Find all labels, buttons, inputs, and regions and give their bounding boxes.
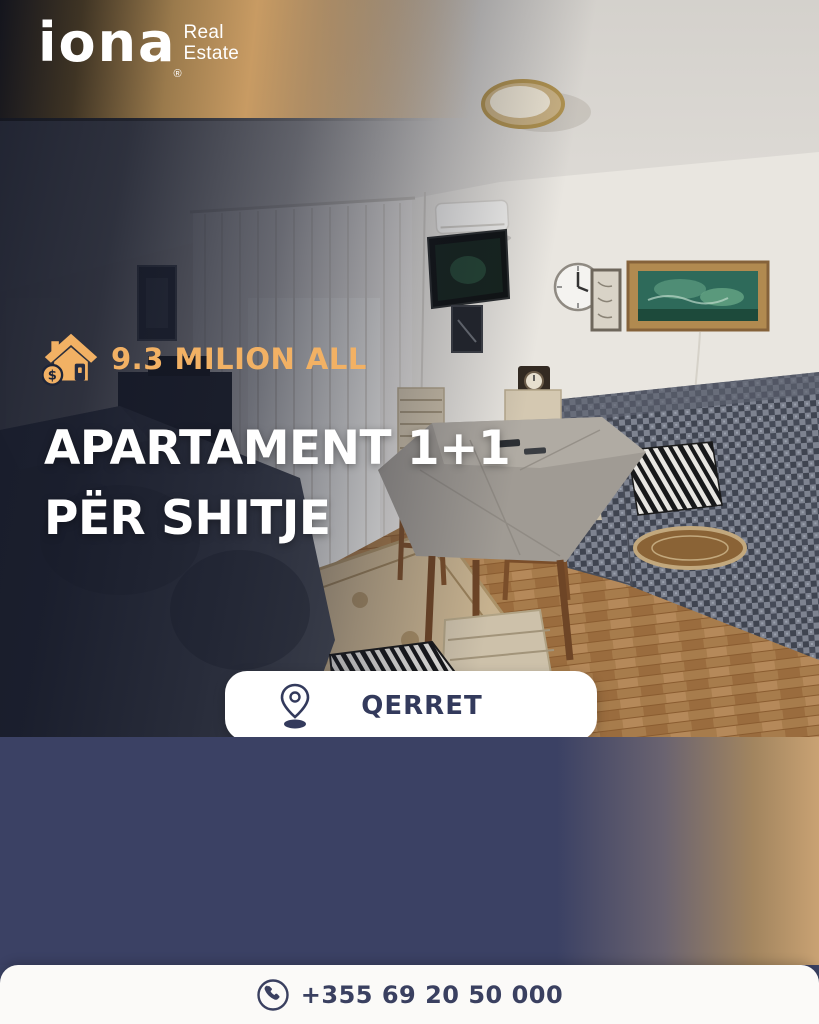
- price-row: $ 9.3 MILION ALL: [42, 332, 367, 386]
- listing-title-line2: PËR SHITJE: [44, 484, 510, 554]
- logo-wordmark: iona: [38, 12, 177, 74]
- phone-icon: [256, 978, 290, 1012]
- phone-bar[interactable]: +355 69 20 50 000: [0, 965, 819, 1024]
- location-name: QERRET: [313, 691, 597, 721]
- listing-title-line1: APARTAMENT 1+1: [44, 414, 510, 484]
- details-section: 66m2 SIPËRFAQE TOTALE ME ASHENSOR: [0, 737, 819, 965]
- registered-trademark: ®: [174, 68, 182, 80]
- price-text: 9.3 MILION ALL: [111, 342, 367, 376]
- phone-number[interactable]: +355 69 20 50 000: [301, 981, 563, 1009]
- listing-poster: iona ® Real Estate $ 9.3 MILION ALL APAR…: [0, 0, 819, 1024]
- map-pin-icon: [277, 682, 313, 730]
- svg-text:$: $: [48, 369, 57, 384]
- location-pill: QERRET: [225, 671, 597, 741]
- brand-banner: iona ® Real Estate: [0, 0, 819, 118]
- listing-title: APARTAMENT 1+1 PËR SHITJE: [44, 414, 510, 554]
- brand-tagline-line2: Estate: [184, 43, 240, 64]
- house-dollar-icon: $: [42, 332, 100, 386]
- brand-tagline-line1: Real: [184, 22, 240, 43]
- brand-logo: iona ® Real Estate: [38, 16, 239, 76]
